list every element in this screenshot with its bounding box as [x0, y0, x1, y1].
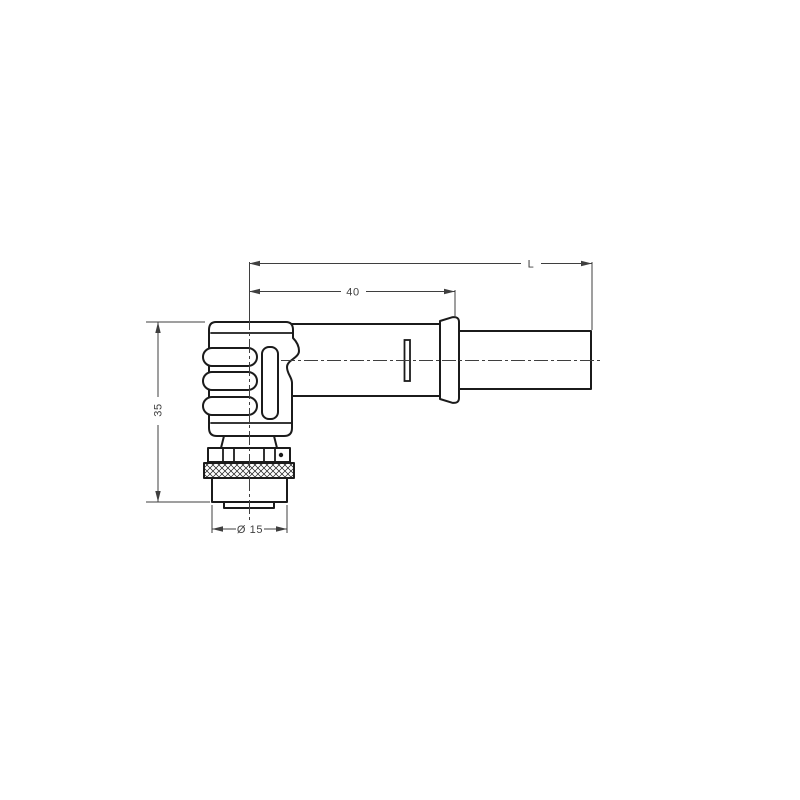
dim-35-arrow-bottom: [155, 491, 160, 502]
set-screw-dot: [279, 453, 283, 457]
dim-d15-label: Ø 15: [237, 524, 263, 536]
grip-rib: [203, 397, 257, 415]
part-outlines: [203, 317, 591, 508]
dim-35-label: 35: [153, 403, 165, 416]
dim-40-arrow-left: [249, 289, 260, 294]
grip-rib: [203, 348, 257, 366]
dim-L-arrow-left: [249, 261, 260, 266]
connector-technical-drawing: L 40 35 Ø 15: [0, 0, 800, 800]
dim-d15-arrow-right: [276, 526, 287, 531]
dim-L-label: L: [528, 259, 535, 271]
label-window: [262, 347, 278, 419]
dim-d15-arrow-left: [212, 526, 223, 531]
dim-40-label: 40: [346, 287, 359, 299]
dim-35-arrow-top: [155, 322, 160, 333]
grip-rib: [203, 372, 257, 390]
dim-40-arrow-right: [444, 289, 455, 294]
page: L 40 35 Ø 15: [0, 0, 800, 800]
dim-L-arrow-right: [581, 261, 592, 266]
